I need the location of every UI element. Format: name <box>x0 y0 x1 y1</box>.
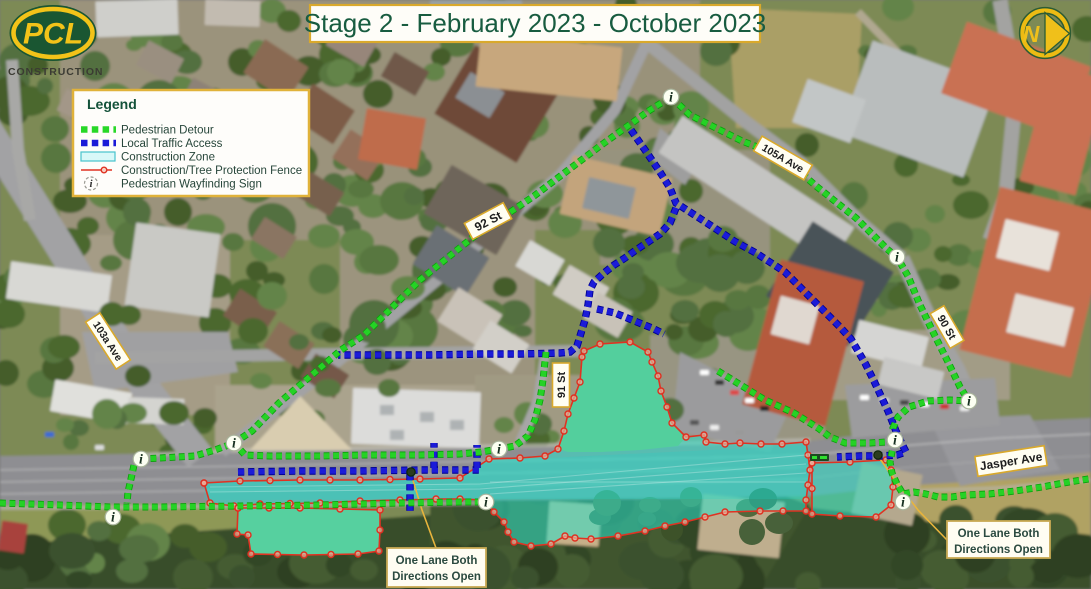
svg-text:i: i <box>232 436 236 451</box>
svg-text:CONSTRUCTION: CONSTRUCTION <box>8 66 103 78</box>
svg-text:i: i <box>669 90 673 105</box>
svg-text:One Lane Both: One Lane Both <box>958 528 1040 540</box>
svg-text:91 St: 91 St <box>556 372 568 399</box>
svg-text:Directions Open: Directions Open <box>392 571 481 583</box>
svg-text:Construction/Tree Protection F: Construction/Tree Protection Fence <box>121 165 302 177</box>
svg-text:PCL: PCL <box>23 18 83 51</box>
svg-text:Legend: Legend <box>87 96 137 112</box>
svg-text:i: i <box>895 250 899 265</box>
svg-text:Stage 2 - February 2023 - Octo: Stage 2 - February 2023 - October 2023 <box>304 8 767 38</box>
svg-text:i: i <box>484 495 488 510</box>
svg-text:Pedestrian Wayfinding Sign: Pedestrian Wayfinding Sign <box>121 179 262 191</box>
svg-text:Directions Open: Directions Open <box>954 544 1043 556</box>
svg-text:Pedestrian Detour: Pedestrian Detour <box>121 125 214 137</box>
svg-text:i: i <box>901 495 905 510</box>
svg-text:i: i <box>893 433 897 448</box>
svg-text:i: i <box>111 510 115 525</box>
svg-text:One Lane Both: One Lane Both <box>396 555 478 567</box>
svg-text:i: i <box>139 452 143 467</box>
svg-text:Construction Zone: Construction Zone <box>121 152 215 164</box>
svg-text:i: i <box>497 442 501 457</box>
svg-text:i: i <box>967 394 971 409</box>
svg-text:Local Traffic Access: Local Traffic Access <box>121 138 223 150</box>
svg-text:N: N <box>1023 21 1040 47</box>
